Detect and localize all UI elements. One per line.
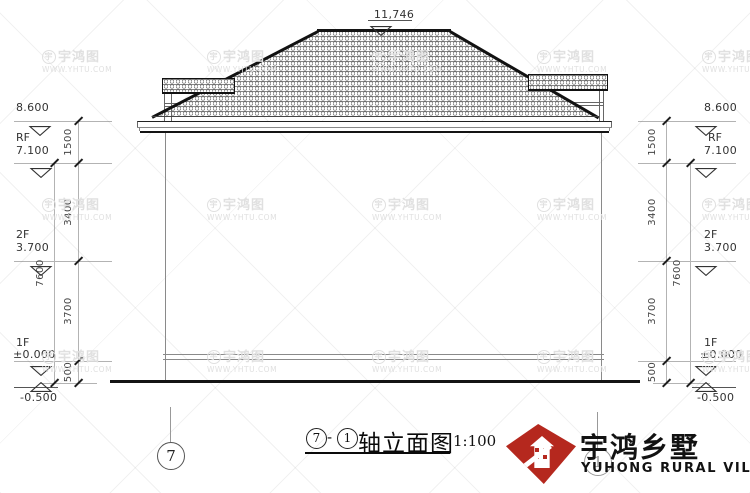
level-left-3700: 3.700 [16, 241, 49, 254]
dim-right-7600: 7600 [672, 243, 684, 303]
level-left-0000: ±0.000 [13, 348, 56, 361]
dim-left-500: 500 [63, 342, 75, 402]
level-right-7100: 7.100 [704, 144, 737, 157]
title-axis-a-bubble: 7 [306, 428, 327, 449]
level-triangle-icon [29, 261, 53, 280]
logo-english-text: YUHONG RURAL VILLAS [581, 461, 750, 476]
left-secondary-roof-cap [162, 78, 235, 94]
level-left-rf-name: RF [16, 131, 30, 144]
level-right-0000: ±0.000 [700, 348, 743, 361]
level-triangle-icon [694, 261, 718, 280]
yuhong-logo: 宇鸿乡墅 YUHONG RURAL VILLAS [506, 424, 750, 486]
level-triangle-icon [694, 163, 718, 182]
dim-right-500: 500 [647, 342, 659, 402]
roof-eave-line [152, 116, 598, 117]
level-triangle-icon [29, 163, 53, 182]
ridge-elevation-triangle-icon [369, 21, 393, 40]
axis-7-leader-line [170, 407, 171, 442]
right-secondary-roof-cap [528, 74, 608, 91]
level-left-8600: 8.600 [16, 101, 49, 114]
elevation-drawing-sheet: 宇宇鸿图WWW.YHTU.COM宇宇鸿图WWW.YHTU.COM宇宇鸿图WWW.… [0, 0, 750, 493]
logo-icon [506, 424, 576, 484]
logo-chinese-text: 宇鸿乡墅 [580, 426, 700, 466]
axis-bubble-7: 7 [157, 442, 185, 470]
dim-left-1500: 1500 [63, 112, 75, 172]
level-right-2f-name: 2F [704, 228, 717, 241]
level-right-3700: 3.700 [704, 241, 737, 254]
dim-left-3700: 3700 [63, 281, 75, 341]
level-triangle-icon [28, 121, 52, 140]
right-gable-edge-line [599, 88, 600, 122]
dim-right-3700: 3700 [647, 281, 659, 341]
title-underline [305, 452, 450, 454]
title-dash: - [327, 428, 333, 446]
drawing-scale: 1:100 [453, 432, 496, 450]
level-left-7100: 7.100 [16, 144, 49, 157]
level-right-m500: -0.500 [697, 391, 734, 404]
ground-line [110, 380, 640, 383]
level-left-m500: -0.500 [20, 391, 57, 404]
level-left-2f-name: 2F [16, 228, 29, 241]
level-right-rf-name: RF [708, 131, 722, 144]
base-trim-bottom-line [163, 359, 604, 360]
dim-right-3400: 3400 [647, 182, 659, 242]
dim-left-3400: 3400 [63, 182, 75, 242]
left-gable-edge-line [164, 91, 165, 122]
base-trim-top-line [163, 354, 604, 355]
level-right-8600: 8.600 [704, 101, 737, 114]
title-axis-b-bubble: 1 [337, 428, 358, 449]
dim-right-1500: 1500 [647, 112, 659, 172]
wall-face [165, 133, 602, 380]
cornice-bottom-edge [140, 131, 609, 133]
right-gable-edge-line [603, 88, 604, 122]
